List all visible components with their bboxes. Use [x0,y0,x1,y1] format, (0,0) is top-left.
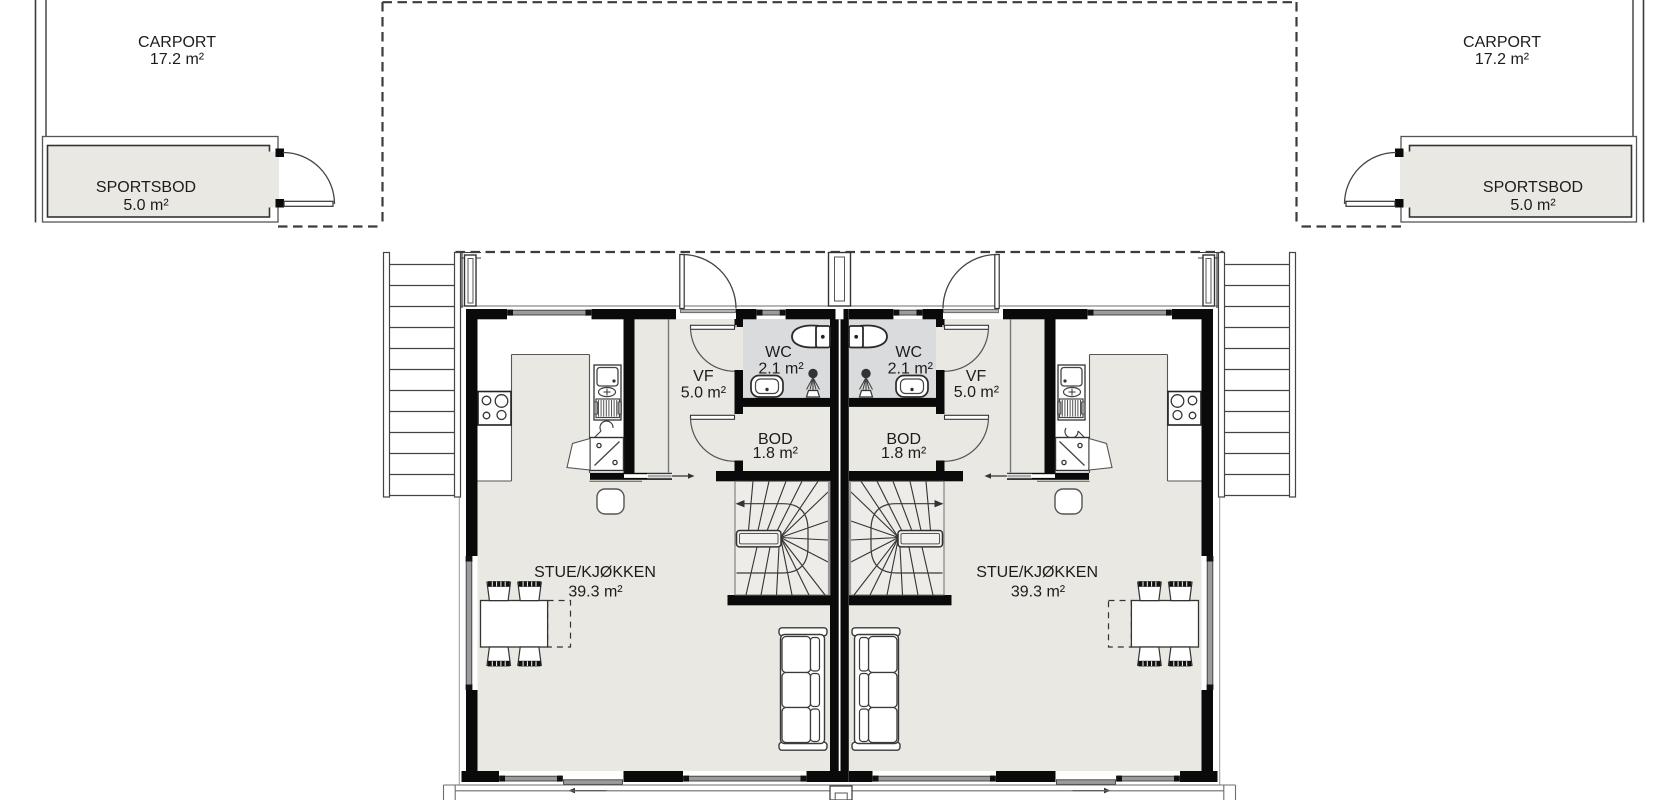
svg-text:17.2 m²: 17.2 m² [150,51,205,68]
svg-text:39.3 m²: 39.3 m² [1011,584,1066,601]
svg-text:1.8 m²: 1.8 m² [753,445,799,462]
svg-text:WC: WC [895,344,922,361]
svg-text:WC: WC [765,344,792,361]
svg-text:SPORTSBOD: SPORTSBOD [96,179,196,196]
svg-text:STUE/KJØKKEN: STUE/KJØKKEN [534,564,656,581]
svg-text:CARPORT: CARPORT [138,34,216,51]
svg-text:1.8 m²: 1.8 m² [881,445,927,462]
svg-text:5.0 m²: 5.0 m² [123,197,169,214]
svg-text:39.3 m²: 39.3 m² [568,584,623,601]
svg-text:2.1 m²: 2.1 m² [888,361,934,378]
svg-text:5.0 m²: 5.0 m² [681,385,727,402]
svg-text:CARPORT: CARPORT [1463,34,1541,51]
svg-text:17.2 m²: 17.2 m² [1475,51,1530,68]
svg-text:5.0 m²: 5.0 m² [954,384,1000,401]
svg-text:SPORTSBOD: SPORTSBOD [1483,179,1583,196]
svg-text:STUE/KJØKKEN: STUE/KJØKKEN [976,564,1098,581]
svg-text:VF: VF [693,368,714,385]
svg-text:2.1 m²: 2.1 m² [758,361,804,378]
svg-text:5.0 m²: 5.0 m² [1510,197,1556,214]
svg-text:VF: VF [966,368,987,385]
